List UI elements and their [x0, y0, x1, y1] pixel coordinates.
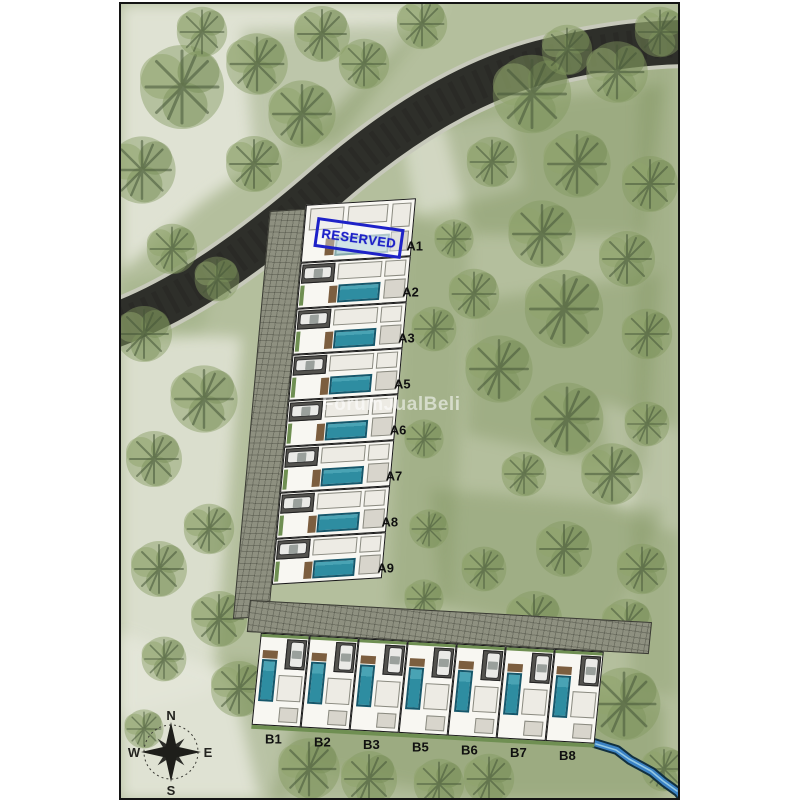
- planter: [299, 285, 305, 305]
- unit-label-b2: B2: [314, 734, 331, 749]
- car-icon: [299, 312, 328, 326]
- unit-label-b6: B6: [461, 742, 478, 757]
- car-icon: [291, 404, 320, 418]
- rooms: [384, 259, 406, 276]
- villa-unit-a5: [288, 348, 402, 401]
- car-icon: [387, 647, 404, 674]
- rooms: [472, 686, 499, 713]
- villa-unit-a3: [293, 302, 407, 355]
- car-icon: [583, 658, 600, 685]
- watermark-text: ForumJualBeli: [322, 394, 460, 416]
- tree-icon: [581, 443, 643, 505]
- pool: [405, 667, 424, 710]
- tree-icon: [147, 224, 197, 274]
- unit-label-a6: A6: [390, 423, 407, 438]
- rooms: [337, 261, 382, 280]
- pool: [316, 512, 360, 533]
- pool-deck: [409, 658, 425, 667]
- pool-deck: [311, 470, 321, 487]
- rooms: [423, 683, 450, 710]
- tree-icon: [142, 637, 187, 682]
- rooms: [521, 688, 548, 715]
- rooms: [276, 675, 303, 702]
- tree-icon: [268, 80, 335, 147]
- pool: [320, 466, 364, 487]
- villa-unit-a9: [272, 532, 386, 585]
- tree-icon: [184, 504, 234, 554]
- compass-south-label: S: [167, 783, 176, 798]
- tree-icon: [531, 383, 604, 456]
- planter: [291, 377, 297, 397]
- tree-icon: [536, 521, 592, 577]
- planter: [310, 637, 357, 643]
- bathroom: [572, 723, 593, 739]
- tree-icon: [617, 544, 667, 594]
- car-icon: [303, 266, 332, 280]
- unit-label-a9: A9: [377, 561, 394, 576]
- tree-icon: [525, 270, 603, 348]
- villa-unit-a7: [280, 440, 394, 493]
- site-plan-map: N E S W A1 A2 A3 A5 A6 A7 A8 A9 B1 B2: [119, 2, 680, 800]
- rooms: [321, 445, 366, 464]
- tree-icon: [625, 402, 670, 447]
- unit-label-a8: A8: [382, 515, 399, 530]
- rooms: [316, 491, 361, 510]
- rooms: [368, 443, 390, 460]
- villa-unit-b8: [546, 649, 604, 744]
- tree-icon: [543, 130, 610, 197]
- pool: [329, 374, 373, 395]
- tree-icon: [339, 39, 389, 89]
- bathroom: [425, 715, 446, 731]
- villa-unit-a8: [276, 486, 390, 539]
- pool-deck: [556, 666, 572, 675]
- rooms: [359, 535, 381, 552]
- pool: [312, 558, 356, 579]
- unit-label-b7: B7: [510, 745, 527, 760]
- unit-label-a3: A3: [398, 331, 415, 346]
- site-plan-image: N E S W A1 A2 A3 A5 A6 A7 A8 A9 B1 B2: [0, 0, 800, 800]
- tree-icon: [140, 45, 224, 129]
- tree-icon: [622, 156, 678, 212]
- villa-row-b: B1 B2 B3 B5 B6 B7 B8: [234, 600, 680, 784]
- bathroom: [376, 713, 397, 729]
- unit-label-a2: A2: [402, 285, 419, 300]
- compass-north-label: N: [166, 708, 175, 723]
- unit-label-b3: B3: [363, 737, 380, 752]
- planter: [555, 650, 602, 656]
- pool: [552, 675, 571, 718]
- pool: [503, 672, 522, 715]
- rooms: [374, 680, 401, 707]
- tree-icon: [195, 257, 240, 302]
- pool-deck: [320, 378, 330, 395]
- tree-icon: [502, 452, 547, 497]
- car-icon: [295, 358, 324, 372]
- compass-east-label: E: [204, 745, 213, 760]
- pool-deck: [303, 562, 313, 579]
- unit-label-b1: B1: [265, 732, 282, 747]
- rooms: [376, 351, 398, 368]
- car-icon: [283, 496, 312, 510]
- planter: [278, 515, 284, 535]
- villa-unit-a2: [297, 256, 411, 309]
- pool-deck: [262, 650, 278, 659]
- car-icon: [338, 644, 355, 671]
- pool: [307, 662, 326, 705]
- car-icon: [289, 641, 306, 668]
- tree-icon: [622, 309, 672, 359]
- tree-icon: [131, 541, 187, 597]
- pool-deck: [360, 655, 376, 664]
- tree-icon: [599, 231, 655, 287]
- tree-icon: [542, 25, 592, 75]
- rooms: [570, 691, 597, 718]
- car-icon: [278, 542, 307, 556]
- rooms: [363, 489, 385, 506]
- tree-icon: [467, 137, 517, 187]
- tree-icon: [124, 709, 163, 748]
- rooms: [380, 305, 402, 322]
- pool-deck: [307, 516, 317, 533]
- compass-west-label: W: [128, 745, 141, 760]
- pool-deck: [458, 661, 474, 670]
- pool: [356, 664, 375, 707]
- rooms: [325, 678, 352, 705]
- pool: [454, 670, 473, 713]
- tree-icon: [126, 431, 182, 487]
- rooms: [312, 537, 357, 556]
- unit-label-a1: A1: [406, 239, 423, 254]
- planter: [408, 642, 455, 648]
- pool-deck: [311, 653, 327, 662]
- tree-icon: [226, 136, 282, 192]
- pool-deck: [328, 286, 338, 303]
- planter: [457, 645, 504, 651]
- pool: [333, 328, 377, 349]
- unit-label-a7: A7: [386, 469, 403, 484]
- planter: [295, 331, 301, 351]
- planter: [274, 561, 280, 581]
- car-icon: [485, 652, 502, 679]
- unit-label-a5: A5: [394, 377, 411, 392]
- bathroom: [523, 721, 544, 737]
- pool: [258, 659, 277, 702]
- tree-icon: [170, 365, 237, 432]
- tree-icon: [177, 7, 227, 57]
- planter: [506, 647, 553, 653]
- unit-label-b5: B5: [412, 740, 429, 755]
- bathroom: [327, 710, 348, 726]
- unit-label-b8: B8: [559, 748, 576, 763]
- pool: [325, 420, 369, 441]
- rooms: [390, 202, 411, 227]
- pool-deck: [507, 663, 523, 672]
- tree-icon: [226, 33, 288, 95]
- pool-deck: [324, 332, 334, 349]
- pool: [337, 282, 381, 303]
- tree-icon: [586, 41, 648, 103]
- car-icon: [436, 650, 453, 677]
- tree-icon: [462, 547, 507, 592]
- planter: [359, 639, 406, 645]
- car-icon: [287, 450, 316, 464]
- bathroom: [474, 718, 495, 734]
- planter: [286, 423, 292, 443]
- tree-icon: [508, 200, 575, 267]
- pool-deck: [316, 424, 326, 441]
- bathroom: [278, 707, 299, 723]
- planter: [282, 469, 288, 489]
- planter: [261, 634, 308, 640]
- car-icon: [534, 655, 551, 682]
- rooms: [333, 307, 378, 326]
- rooms: [329, 353, 374, 372]
